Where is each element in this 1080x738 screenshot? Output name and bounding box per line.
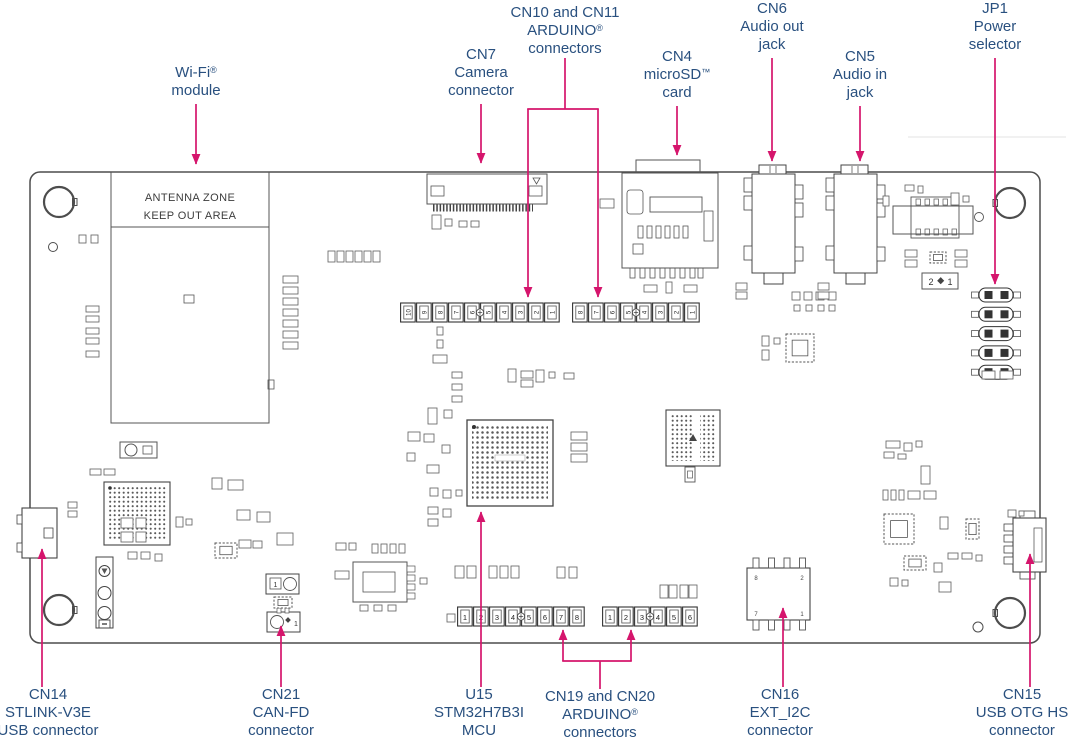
callout-line: module [171,82,220,100]
svg-text:10: 10 [406,309,412,316]
callout-line: Wi-Fi® [171,64,220,82]
callout-line: CN10 and CN11 [511,4,620,22]
callout-line: connectors [511,40,620,58]
callout-cn10-cn11-arduino: CN10 and CN11 ARDUINO® connectors [511,4,620,58]
antenna-zone-text-line2: KEEP OUT AREA [144,210,237,222]
callout-line: jack [740,36,803,54]
callout-line: STM32H7B3I [434,704,524,722]
callout-cn15-usb-otg: CN15 USB OTG HS connector [976,686,1069,738]
svg-text:5: 5 [527,613,531,622]
svg-text:1: 1 [294,621,298,628]
callout-line: STLINK-V3E [0,704,98,722]
can-transceiver-chip [353,562,415,602]
callout-line: CN5 [833,48,887,66]
callout-cn4-microsd: CN4 microSD™ card [644,48,711,102]
callout-cn14-stlink: CN14 STLINK-V3E USB connector [0,686,98,738]
callout-line: connectors [545,724,655,738]
svg-text:4: 4 [656,613,660,622]
callout-line: CAN-FD [248,704,314,722]
audio-in-jack-cn5 [826,165,885,284]
svg-text:4: 4 [511,613,515,622]
callout-cn7-camera: CN7 Camera connector [448,46,514,100]
svg-text:3: 3 [640,613,644,622]
callout-line: microSD™ [644,66,711,84]
callout-line: CN14 [0,686,98,704]
callout-u15-mcu: U15 STM32H7B3I MCU [434,686,524,738]
antenna-zone-text-line1: ANTENNA ZONE [145,192,235,204]
callout-cn5-audio-in: CN5 Audio in jack [833,48,887,102]
svg-text:1: 1 [947,277,952,287]
callout-line: connector [248,722,314,738]
callout-jp1-power-selector: JP1 Power selector [969,0,1022,54]
svg-text:6: 6 [688,613,692,622]
callout-line: USB connector [0,722,98,738]
audio-out-jack-cn6 [744,165,803,284]
callout-line: connector [448,82,514,100]
svg-text:7: 7 [559,613,563,622]
callout-line: ARDUINO® [511,22,620,40]
callout-cn6-audio-out: CN6 Audio out jack [740,0,803,54]
callout-line: CN19 and CN20 [545,688,655,706]
callout-line: CN4 [644,48,711,66]
callout-line: selector [969,36,1022,54]
callout-line: Power [969,18,1022,36]
svg-text:3: 3 [495,613,499,622]
callout-line: Audio out [740,18,803,36]
callout-cn16-ext-i2c: CN16 EXT_I2C connector [747,686,813,738]
callout-line: Camera [448,64,514,82]
callout-line: MCU [434,722,524,738]
pcb-board-drawing: ANTENNA ZONE KEEP OUT AREA [0,0,1080,738]
svg-text:1: 1 [608,613,612,622]
pcb-diagram-figure: ANTENNA ZONE KEEP OUT AREA [0,0,1080,738]
stlink-usb-connector-cn14 [17,508,57,558]
callout-cn19-cn20-arduino: CN19 and CN20 ARDUINO® connectors [545,688,655,738]
callout-line: CN15 [976,686,1069,704]
svg-text:2: 2 [928,277,933,287]
callout-line: CN7 [448,46,514,64]
board-outline [30,172,1040,643]
callout-line: USB OTG HS [976,704,1069,722]
svg-text:8: 8 [575,613,579,622]
callout-line: CN21 [248,686,314,704]
mcu-bga-u15 [467,420,553,506]
callout-line: connector [747,722,813,738]
callout-line: CN6 [740,0,803,18]
callout-line: connector [976,722,1069,738]
callout-line: jack [833,84,887,102]
callout-line: card [644,84,711,102]
callout-line: CN16 [747,686,813,704]
callout-wifi-module: Wi-Fi® module [171,64,220,100]
callout-line: EXT_I2C [747,704,813,722]
svg-text:1: 1 [463,613,467,622]
svg-text:2: 2 [624,613,628,622]
callout-line: Audio in [833,66,887,84]
callout-cn21-canfd: CN21 CAN-FD connector [248,686,314,738]
svg-text:1: 1 [274,582,278,589]
svg-text:5: 5 [672,613,676,622]
callout-line: ARDUINO® [545,706,655,724]
ext-i2c-connector-cn16: 8 2 7 1 [747,558,810,630]
svg-text:6: 6 [543,613,547,622]
callout-line: U15 [434,686,524,704]
callout-line: JP1 [969,0,1022,18]
